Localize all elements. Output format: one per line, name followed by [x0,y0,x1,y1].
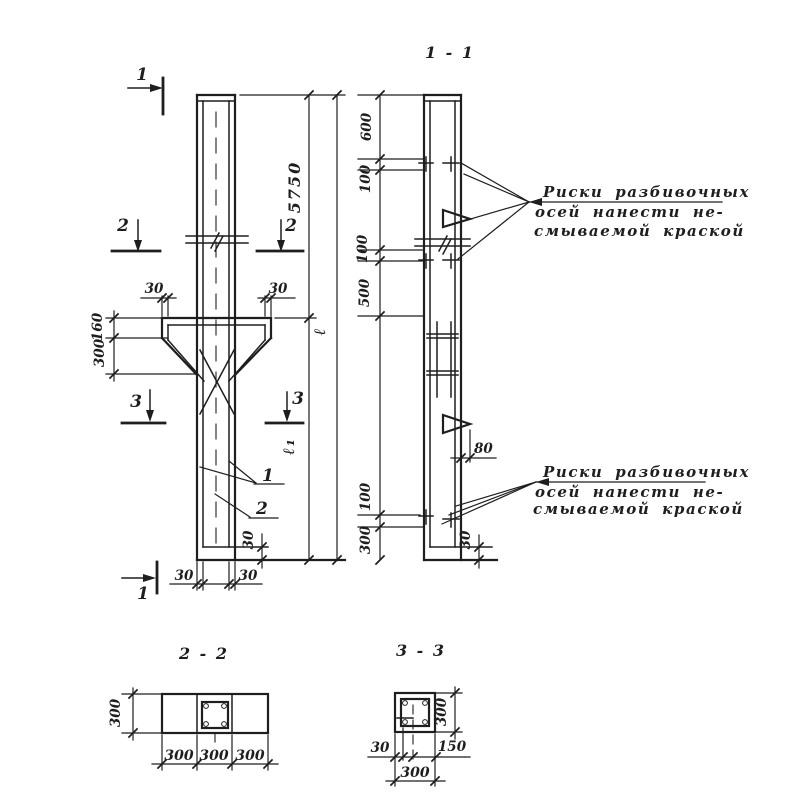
section-mark-3-right: 3 [266,389,304,423]
stirrup [202,702,228,728]
note-line-2: осей нанести не- [535,483,724,501]
section-2-2-dimensions: 300 300 300 300 [108,688,278,770]
stirrup-ladder [427,322,458,397]
dim-100: 100 [355,234,371,263]
column-working-drawing: 1 1 2 2 3 3 [0,0,800,800]
dim-300: 300 [400,765,429,781]
section-mark-label: 1 [136,65,148,85]
lifting-loop-upper [443,210,470,227]
callout-1: 1 [200,461,284,486]
rebar-dots [204,704,227,727]
section-mark-label: 3 [130,392,142,412]
section-1-1-view: 1 - 1 [355,43,750,568]
section-mark-label: 2 [116,216,129,236]
elevation-view: 1 1 2 2 3 3 [90,65,345,604]
break-line [186,233,248,251]
overall-dimensions: 5750 ℓ₁ ℓ [240,95,345,560]
loop-projection-dimension: 80 [451,430,496,462]
dim-300: 300 [164,748,193,764]
section-mark-3-left: 3 [122,390,165,423]
dim-150: 150 [438,739,467,755]
section-mark-2-left: 2 [112,216,160,252]
section-mark-label: 1 [137,584,149,604]
dim-80: 80 [474,441,493,457]
section-mark-label: 2 [284,216,297,236]
drawing-sheet: 1 1 2 2 3 3 [0,0,800,800]
dim-30: 30 [175,568,194,584]
lifting-loop-lower [443,415,470,433]
dim-30: 30 [458,530,474,549]
dim-300: 300 [199,748,228,764]
dim-30: 30 [241,530,257,549]
corbel-cover-dimensions: 30 30 [141,281,295,316]
note-line-2: осей нанести не- [535,203,724,221]
callout-2: 2 [215,494,278,519]
section-1-1-title: 1 - 1 [425,43,475,62]
section-3-3-dimensions: 300 30 150 300 [368,687,470,786]
section-1-1-dimensions: 600 100 100 500 100 300 [355,95,424,560]
dim-30: 30 [371,740,390,756]
column-outline [424,95,497,560]
section-2-2-view: 2 - 2 300 300 300 300 [108,644,278,770]
section-mark-label: 3 [292,389,304,409]
note-line-3: смываемой краской [533,500,744,518]
dim-300: 300 [235,748,264,764]
section-2-2-title: 2 - 2 [178,644,229,663]
note-line-3: смываемой краской [534,222,745,240]
dim-l1: ℓ₁ [279,437,298,456]
note-line-1: Риски разбивочных [542,463,750,481]
section-mark-2-right: 2 [257,216,303,252]
section-3-3-title: 3 - 3 [396,641,446,660]
note-bottom: Риски разбивочных осей нанести не- смыва… [442,463,750,524]
dim-30: 30 [239,568,258,584]
dim-300: 300 [108,698,124,727]
dim-30: 30 [269,281,288,297]
dim-300: 300 [92,338,108,367]
dim-300: 300 [434,697,450,726]
section-mark-1-bottom: 1 [122,562,157,604]
dim-160: 160 [90,312,106,341]
dim-600: 600 [359,112,375,141]
dim-100: 100 [358,164,374,193]
dim-100: 100 [358,482,374,511]
note-top: Риски разбивочных осей нанести не- смыва… [458,163,750,259]
rebar-dots [403,701,428,725]
section-3-3-view: 3 - 3 300 30 150 300 [368,641,470,786]
callout-2-label: 2 [255,499,268,519]
section-mark-1-top: 1 [128,65,163,114]
dim-30: 30 [145,281,164,297]
corbel-dimensions: 160 300 [90,311,197,381]
note-line-1: Риски разбивочных [542,183,750,201]
dim-l: ℓ [310,327,329,337]
dim-5750: 5750 [285,161,304,214]
stirrup [401,699,429,726]
dim-300: 300 [358,525,374,554]
callout-1-label: 1 [262,466,274,486]
dim-500: 500 [357,278,373,307]
